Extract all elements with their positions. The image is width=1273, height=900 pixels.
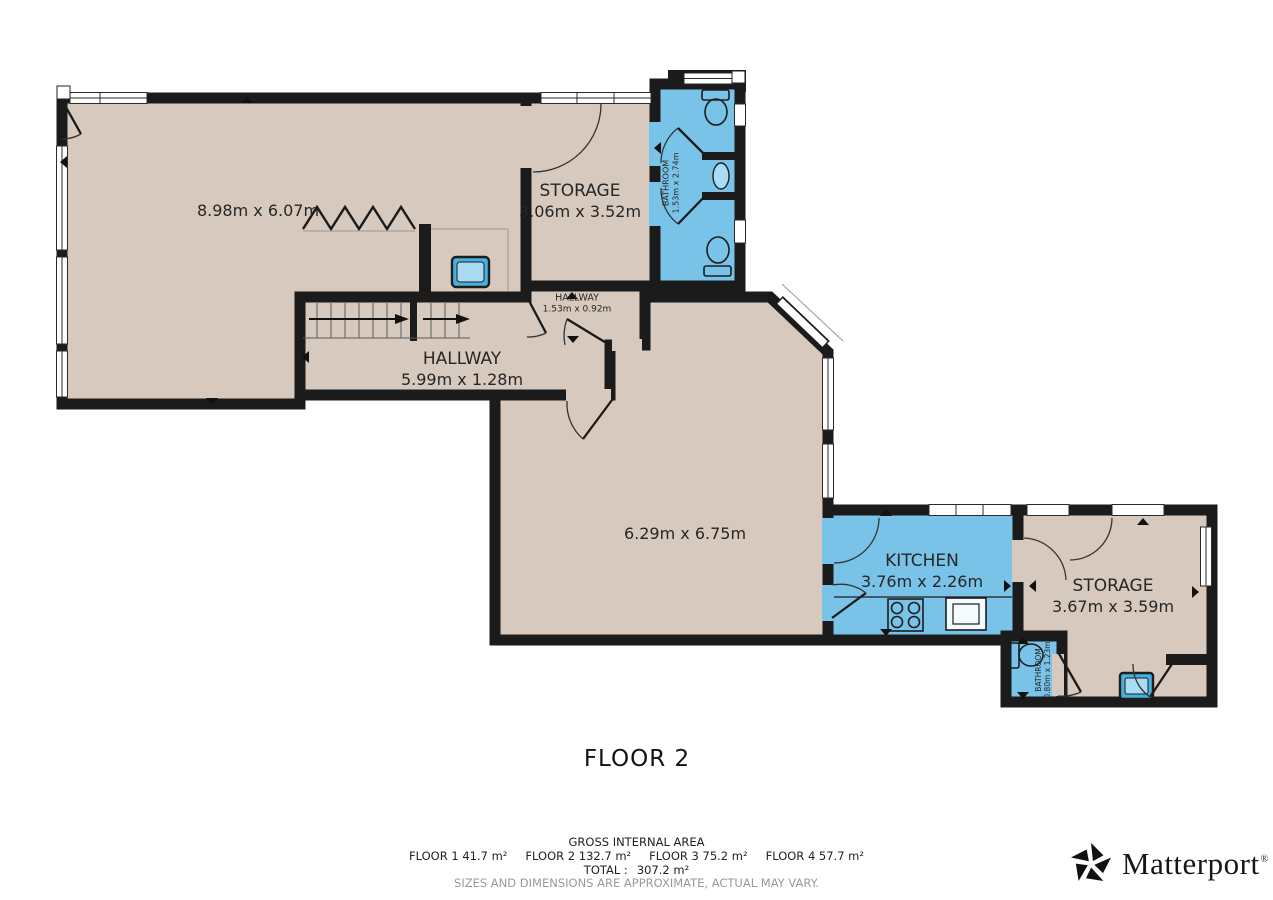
room-label-bathroom-upper: BATHROOM 1.53m x 2.74m <box>661 152 681 213</box>
room-dims: 1.53m x 2.74m <box>671 152 681 213</box>
room-dims: 3.06m x 3.52m <box>519 202 641 222</box>
floorplan-page: 8.98m x 6.07m STORAGE 3.06m x 3.52m BATH… <box>0 0 1273 900</box>
room-name: STORAGE <box>519 181 641 202</box>
room-name: HALLWAY <box>401 349 523 370</box>
matterport-pinwheel-icon <box>1068 840 1114 888</box>
total-label: TOTAL : <box>584 863 628 877</box>
kitchen-sink-icon <box>946 598 986 630</box>
matterport-logo: Matterport® <box>1068 840 1269 888</box>
room-dims: 3.67m x 3.59m <box>1052 597 1174 617</box>
floors-and-walls <box>62 84 1212 702</box>
room-label-main-lower: 6.29m x 6.75m <box>624 524 746 544</box>
room-label-storage-upper: STORAGE 3.06m x 3.52m <box>519 181 641 221</box>
room-name: BATHROOM <box>1034 641 1043 698</box>
window <box>929 505 1011 516</box>
matterport-wordmark: Matterport® <box>1122 846 1269 882</box>
room-dims: 1.53m x 0.92m <box>543 304 612 315</box>
window <box>1112 505 1164 516</box>
total-value: 307.2 m² <box>637 863 689 877</box>
room-dims: 8.98m x 6.07m <box>197 201 319 221</box>
room-label-hallway-main: HALLWAY 5.99m x 1.28m <box>401 349 523 389</box>
room-label-storage-lower: STORAGE 3.67m x 3.59m <box>1052 576 1174 616</box>
floor-title: FLOOR 2 <box>584 746 690 772</box>
room-label-bathroom-lower: BATHROOM 0.80m x 1.23m <box>1034 641 1052 698</box>
floor-area-item: FLOOR 4 57.7 m² <box>766 849 864 863</box>
floor-area-item: FLOOR 3 75.2 m² <box>649 849 747 863</box>
room-label-hallway-small: HALLWAY 1.53m x 0.92m <box>543 293 612 316</box>
room-name: BATHROOM <box>661 152 671 213</box>
room-dims: 3.76m x 2.26m <box>861 572 983 592</box>
window <box>1027 505 1069 516</box>
room-dims: 0.80m x 1.23m <box>1043 641 1052 698</box>
registered-mark: ® <box>1261 854 1269 865</box>
floor-area-item: FLOOR 1 41.7 m² <box>409 849 507 863</box>
basin-icon <box>713 163 729 189</box>
sink-icon <box>452 257 489 287</box>
room-name: KITCHEN <box>861 551 983 572</box>
window <box>735 220 746 243</box>
room-dims: 5.99m x 1.28m <box>401 370 523 390</box>
room-label-main-upper: 8.98m x 6.07m <box>197 201 319 221</box>
window <box>735 104 746 126</box>
floor-area-item: FLOOR 2 132.7 m² <box>525 849 631 863</box>
room-name: HALLWAY <box>543 293 612 305</box>
room-label-kitchen: KITCHEN 3.76m x 2.26m <box>861 551 983 591</box>
room-dims: 6.29m x 6.75m <box>624 524 746 544</box>
room-name: STORAGE <box>1052 576 1174 597</box>
